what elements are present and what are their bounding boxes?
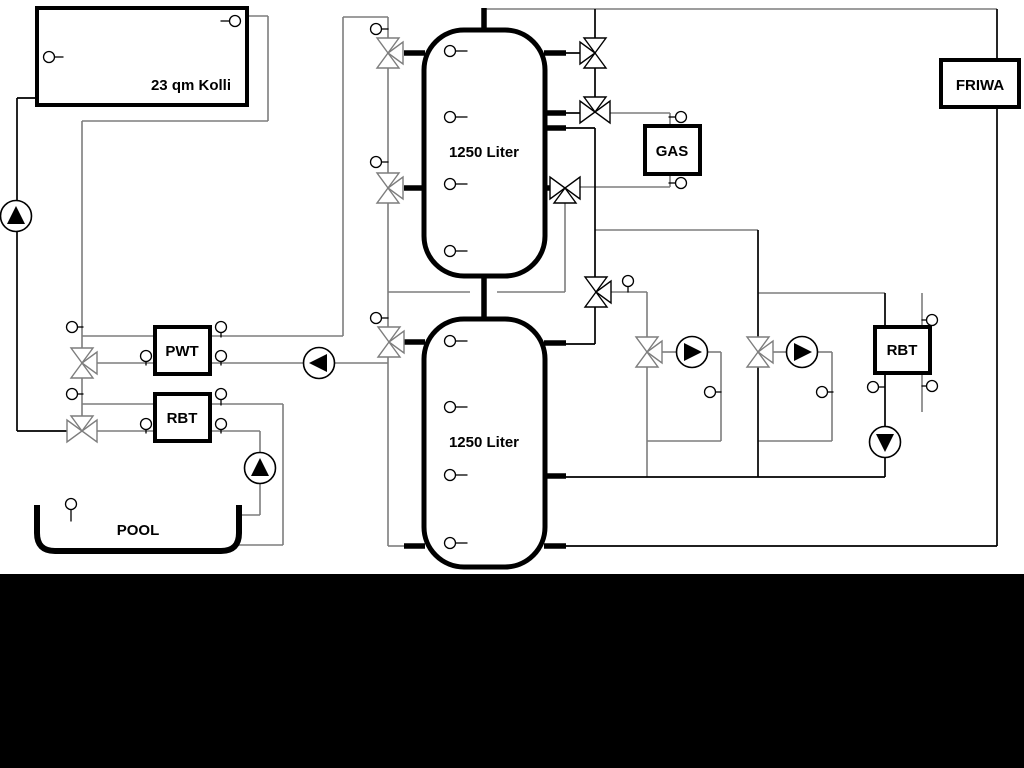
sensor-bulb [67, 389, 78, 400]
sensor-bulb [927, 315, 938, 326]
temperature-sensor-icon [67, 389, 84, 400]
sensor-bulb [445, 402, 456, 413]
heating-circuit-2-pump-icon [787, 337, 818, 368]
temperature-sensor-icon [371, 313, 389, 324]
three-way-valve-icon [580, 97, 610, 123]
three-way-valve-icon [747, 337, 773, 367]
temperature-sensor-icon [216, 322, 227, 338]
sensor-bulb [216, 419, 227, 430]
collector-label: 23 qm Kolli [151, 77, 231, 94]
three-way-valve-icon [585, 277, 611, 307]
three-way-valve-icon [378, 327, 404, 357]
friwa-label: FRIWA [956, 77, 1004, 94]
pool-label: POOL [117, 522, 160, 539]
sensor-bulb [371, 24, 382, 35]
temperature-sensor-icon [705, 387, 722, 398]
sensor-bulb [676, 178, 687, 189]
sensor-bulb [216, 351, 227, 362]
temperature-sensor-icon [216, 389, 227, 406]
sensor-bulb [676, 112, 687, 123]
sensor-bulb [371, 157, 382, 168]
gas-label: GAS [656, 143, 689, 160]
three-way-valve-icon [71, 348, 97, 378]
sensor-bulb [623, 276, 634, 287]
tank-bottom-label: 1250 Liter [449, 434, 519, 451]
solar-pump-icon [1, 201, 32, 232]
diagram-canvas: 23 qm Kolli1250 Liter1250 LiterPWTRBTGAS… [0, 0, 1024, 768]
sensor-bulb [445, 538, 456, 549]
pool-pump-icon [245, 453, 276, 484]
sensor-bulb [705, 387, 716, 398]
heating-circuit-1-pump-icon [677, 337, 708, 368]
bottom-black-bar [0, 574, 1024, 768]
three-way-valve-icon [377, 38, 403, 68]
sensor-bulb [445, 179, 456, 190]
temperature-sensor-icon [817, 387, 834, 398]
sensor-bulb [141, 351, 152, 362]
temperature-sensor-icon [623, 276, 634, 293]
sensor-bulb [141, 419, 152, 430]
three-way-valve-icon [377, 173, 403, 203]
tank-top-label: 1250 Liter [449, 144, 519, 161]
rbt-right-label: RBT [887, 342, 918, 359]
schematic-page: 23 qm Kolli1250 Liter1250 LiterPWTRBTGAS… [0, 0, 1024, 768]
pwt-label: PWT [165, 343, 198, 360]
sensor-bulb [216, 322, 227, 333]
sensor-bulb [371, 313, 382, 324]
temperature-sensor-icon [66, 499, 77, 522]
sensor-bulb [445, 46, 456, 57]
temperature-sensor-icon [922, 381, 938, 392]
sensor-bulb [445, 112, 456, 123]
sensor-bulb [445, 470, 456, 481]
sensor-bulb [67, 322, 78, 333]
temperature-sensor-icon [371, 24, 389, 35]
temperature-sensor-icon [868, 382, 886, 393]
three-way-valve-icon [550, 177, 580, 203]
sensor-bulb [216, 389, 227, 400]
three-way-valve-icon [67, 416, 97, 442]
three-way-valve-icon [580, 38, 606, 68]
sensor-bulb [927, 381, 938, 392]
sensor-bulb [66, 499, 77, 510]
rbt-return-pump-icon [870, 427, 901, 458]
temperature-sensor-icon [371, 157, 389, 168]
sensor-bulb [445, 336, 456, 347]
temperature-sensor-icon [67, 322, 84, 333]
charge-pump-icon [304, 348, 335, 379]
three-way-valve-icon [636, 337, 662, 367]
rbt-left-label: RBT [167, 410, 198, 427]
sensor-bulb [44, 52, 55, 63]
sensor-bulb [445, 246, 456, 257]
sensor-bulb [230, 16, 241, 27]
sensor-bulb [817, 387, 828, 398]
sensor-bulb [868, 382, 879, 393]
temperature-sensor-icon [669, 178, 687, 189]
temperature-sensor-icon [922, 315, 938, 326]
temperature-sensor-icon [669, 112, 687, 123]
